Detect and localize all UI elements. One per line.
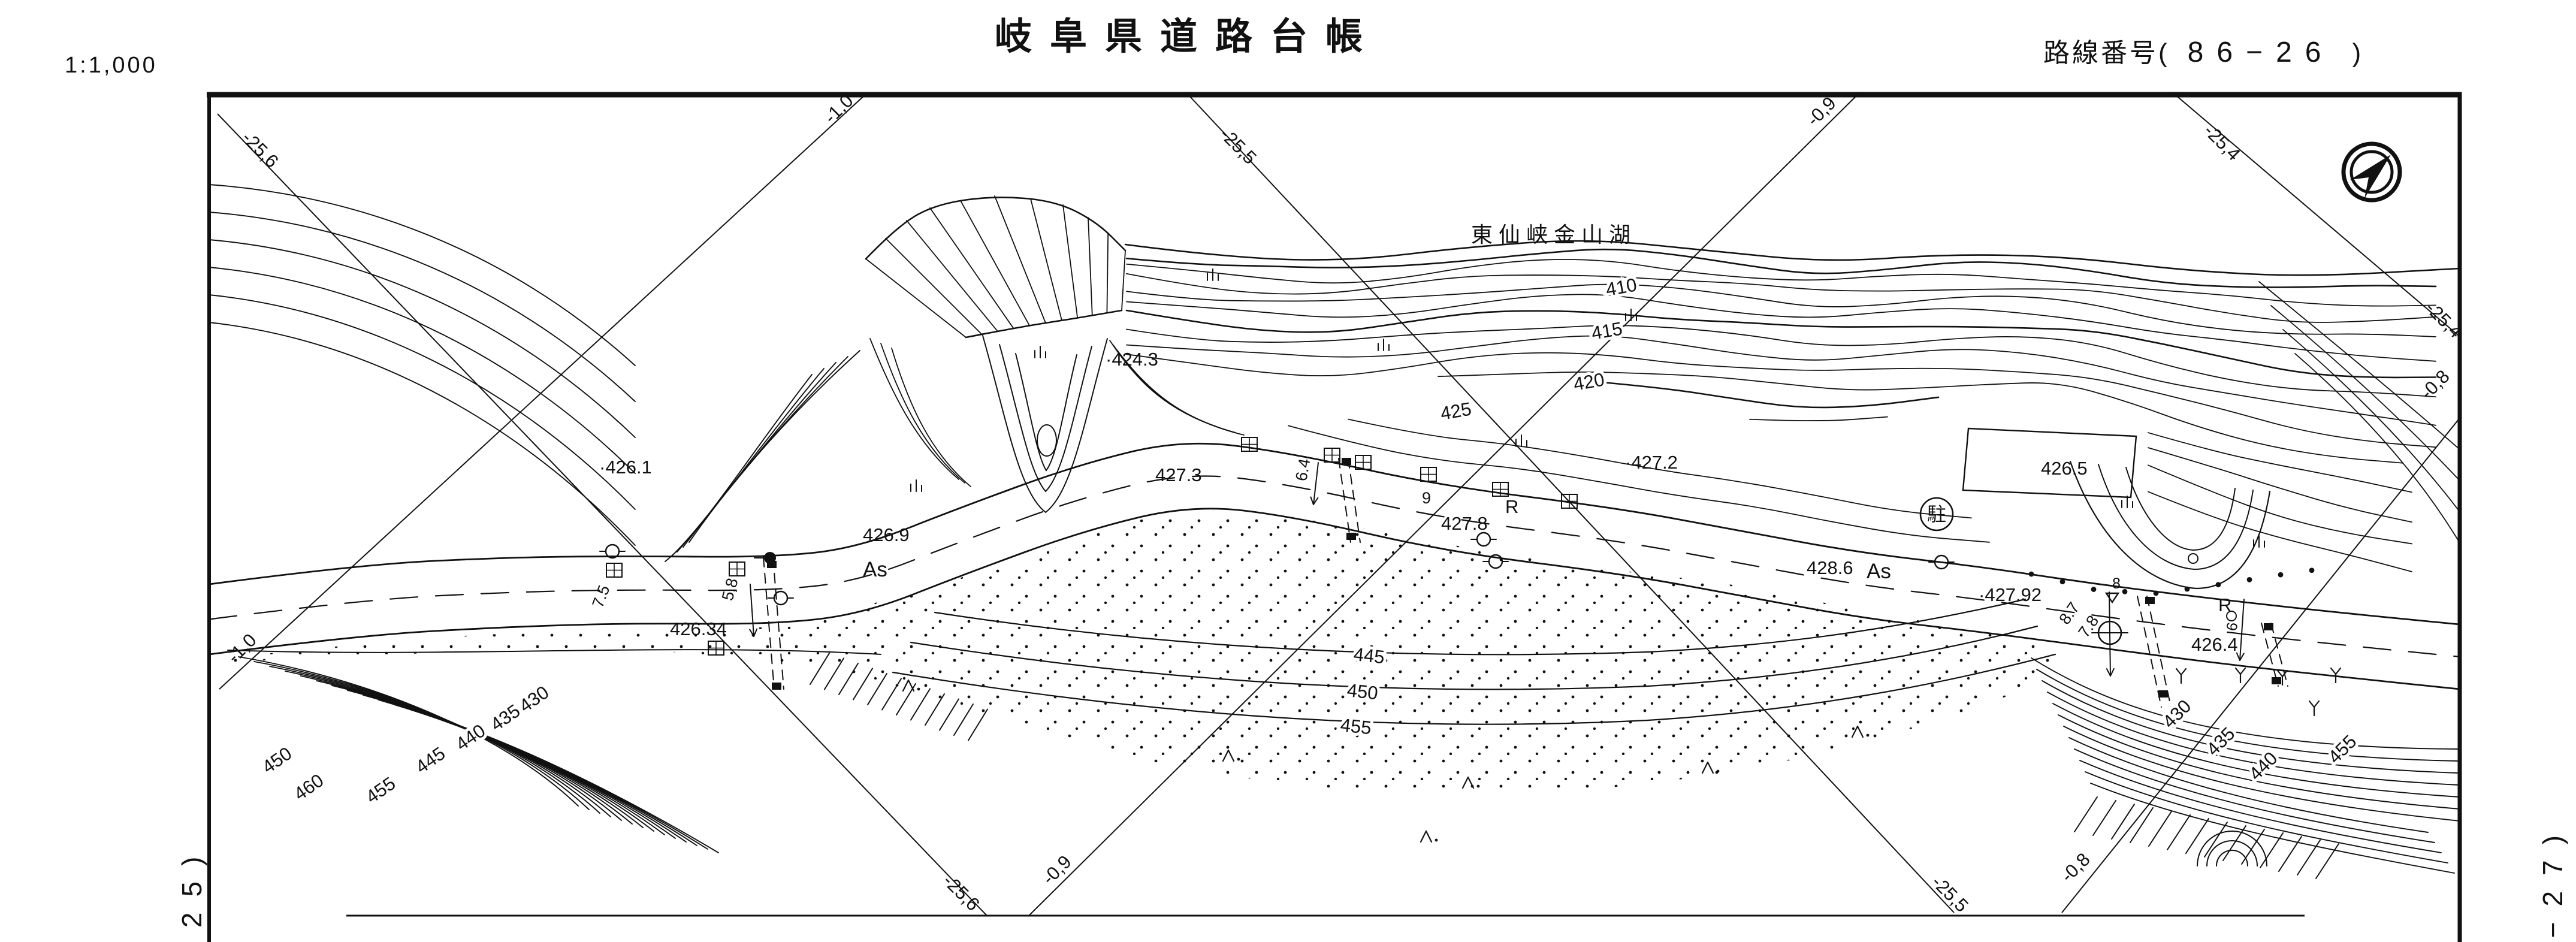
slope-hachure	[925, 694, 944, 725]
slope-hachure	[968, 709, 987, 741]
map-annotation-label: 455	[2324, 731, 2360, 768]
map-annotation-label: 450	[258, 742, 295, 777]
slope-hachure	[2093, 801, 2116, 835]
cliff-hachure	[907, 221, 998, 331]
contour-line	[1750, 417, 1888, 421]
culvert-crossing	[2261, 623, 2278, 686]
grid-coordinate-label: -25,6	[238, 127, 283, 172]
dimension-arrow	[2107, 592, 2114, 676]
culvert-end-icon	[1342, 458, 1351, 465]
contour-line	[1127, 274, 2436, 322]
map-annotation-label: 430	[515, 681, 552, 716]
contour-line	[209, 212, 635, 401]
contour-line	[2070, 461, 2270, 588]
slope-hachure	[2167, 815, 2190, 850]
map-annotation-label: ·426.1	[599, 457, 652, 478]
contour-line	[1127, 353, 2436, 447]
road-ledger-sheet: { "colors": {"ink": "#111111", "paper": …	[0, 0, 2576, 942]
map-border	[207, 92, 2462, 942]
contour-line	[689, 351, 860, 542]
culvert-end-icon	[2145, 597, 2155, 604]
utility-box-icon	[606, 563, 622, 577]
map-annotation-label: 445	[412, 742, 449, 777]
map-annotation-label: 426.34	[670, 618, 727, 639]
guardrail-dot	[2309, 567, 2315, 573]
grass-mark-icon	[1207, 269, 1218, 280]
map-annotation-label: 455	[1339, 714, 1372, 738]
culvert-crossing	[2137, 596, 2161, 707]
contour-line	[665, 375, 812, 561]
contour-line	[2085, 772, 2448, 863]
grid-coordinate-label: -0,9	[1802, 92, 1840, 130]
contour-line	[2126, 467, 2235, 550]
shrub-mark-icon	[2176, 669, 2186, 683]
contour-line	[1127, 294, 2436, 361]
contour-line	[209, 267, 635, 473]
marsh-mark-icon	[1421, 831, 1438, 842]
cliff-base	[966, 310, 1122, 337]
map-annotation-label: 5,8	[718, 576, 742, 603]
contour-line	[1288, 425, 1989, 542]
culvert-crossing	[2271, 623, 2288, 686]
map-annotation-label: R	[1505, 496, 1518, 517]
contour-line	[316, 681, 632, 824]
guardrail-dot	[2216, 582, 2221, 587]
benchmark-triangle-icon	[2106, 593, 2118, 602]
contour-line	[1127, 336, 2436, 425]
culvert-end-icon	[2272, 677, 2281, 684]
contour-line	[332, 686, 643, 828]
contour-line	[2148, 465, 2412, 544]
map-annotation-label: 426.9	[863, 524, 910, 545]
guardrail-dot	[2122, 589, 2128, 594]
culvert-end-icon	[2158, 690, 2168, 698]
grid-coordinate-label: -0,8	[2056, 849, 2094, 886]
map-annotation-label: 420	[1572, 369, 1606, 394]
cliff-hachure	[930, 208, 1013, 328]
contour-line	[1127, 285, 2436, 337]
guardrail-dot	[2060, 579, 2065, 584]
lake-name-label: 東仙峡金山湖	[1471, 223, 1636, 247]
map-annotation-label: 450	[1346, 680, 1379, 704]
map-annotation-label: 6	[2223, 621, 2241, 632]
map-annotation-label: As	[1867, 560, 1891, 583]
cliff-hachure	[1031, 199, 1062, 321]
map-annotation-label: 7.5	[588, 583, 613, 611]
parking-symbol-label: 駐	[1927, 503, 1946, 525]
cliff-hachure	[995, 196, 1046, 323]
contour-line	[285, 671, 611, 817]
slope-hachure	[2297, 840, 2320, 875]
guardrail-dot	[2185, 587, 2190, 592]
map-annotation-label: ·424.3	[1106, 349, 1158, 370]
guardrail-dot	[2278, 572, 2284, 578]
contour-line	[394, 705, 686, 842]
shrub-mark-icon	[2236, 668, 2245, 683]
contour-line	[1127, 310, 2436, 378]
contour-line	[238, 657, 578, 806]
grid-line	[219, 95, 865, 689]
map-annotation-label: 425	[1439, 398, 1473, 424]
contour-line	[2148, 492, 2412, 572]
guardrail-dot	[2154, 591, 2159, 596]
slope-hachure	[2279, 837, 2302, 871]
grid-coordinate-label: -25,4	[2200, 120, 2245, 165]
contour-line	[881, 343, 965, 483]
cliff-hachure	[1122, 250, 1125, 310]
map-annotation-label: 426.5	[2041, 458, 2088, 479]
slope-hachure	[940, 699, 959, 730]
map-annotation-label: R	[2218, 594, 2231, 615]
map-annotation-label: ·427.92	[1979, 584, 2042, 605]
map-annotation-label: 6.4	[1292, 457, 1313, 482]
grid-coordinate-label: -0,9	[1038, 851, 1076, 889]
culvert-end-icon	[2264, 623, 2273, 630]
contour-line	[2031, 658, 2460, 749]
contour-line	[1594, 382, 1938, 407]
map-annotation-label: 415	[1590, 318, 1624, 343]
slope-hachure	[2149, 811, 2172, 846]
grid-line	[2062, 419, 2459, 913]
slope-hachure	[911, 689, 930, 720]
contour-line	[2216, 850, 2248, 866]
grid-coordinate-label: -0,8	[2416, 366, 2454, 403]
riverbed-dotted-area	[216, 511, 2053, 794]
grid-coordinate-label: -25,5	[1928, 871, 1973, 916]
cliff-crest	[866, 197, 1125, 259]
slope-hachure	[2186, 819, 2209, 853]
contour-line	[209, 185, 635, 366]
gully-contour	[1037, 425, 1056, 456]
map-annotation-label: 460	[290, 769, 327, 804]
slope-hachure	[2112, 804, 2134, 839]
grass-mark-icon	[911, 480, 922, 491]
map-annotation-label: 427.3	[1155, 464, 1202, 485]
grass-mark-icon	[1035, 346, 1046, 358]
gully-contour	[983, 336, 1107, 512]
guardrail-dot	[2029, 572, 2034, 577]
cliff-hachure	[1088, 218, 1092, 315]
map-annotation-label: 427.8	[1441, 513, 1488, 534]
grid-coordinate-label: -25,6	[939, 870, 984, 915]
slope-hachure	[954, 704, 973, 735]
map-annotation-label: 428.6	[1807, 557, 1853, 578]
map-annotation-label: 410	[1604, 274, 1638, 300]
culvert-end-icon	[1346, 533, 1356, 540]
grid-coordinate-label: -25,5	[1216, 123, 1261, 168]
grass-mark-icon	[1378, 339, 1389, 351]
map-annotation-label: 8	[2112, 575, 2121, 592]
map-annotation-label: 426.4	[2191, 634, 2238, 655]
well-circle-icon	[768, 591, 793, 605]
map-annotation-label: 435	[487, 700, 524, 735]
map-annotation-label: 430	[2158, 696, 2195, 732]
contour-line	[892, 348, 971, 487]
lake-shoreline	[1125, 241, 2460, 275]
contour-line	[209, 240, 635, 437]
contour-line	[410, 709, 697, 846]
contour-line	[2098, 464, 2253, 569]
cliff-hachure	[866, 259, 966, 337]
gully-contour	[1016, 354, 1077, 470]
guardrail-dot	[2091, 587, 2097, 592]
north-arrow-icon	[2344, 144, 2400, 200]
contour-line	[1127, 249, 2436, 287]
map-annotation-label: As	[863, 558, 887, 581]
utility-box-icon	[1421, 467, 1436, 481]
map-canvas: 駐 -25,6-25,6-0,9-0,9-1,0-1,0-25,5-25,5-0…	[0, 0, 2576, 942]
utility-box-icon	[1324, 448, 1340, 462]
guardrail-dot	[2247, 577, 2252, 582]
map-annotation-label: 435	[2202, 723, 2239, 760]
slope-hachure	[2204, 822, 2227, 857]
cliff-hachure	[961, 201, 1029, 325]
culvert-end-icon	[772, 683, 781, 690]
contour-line	[1127, 259, 2436, 306]
utility-box-icon	[729, 562, 745, 576]
grass-mark-icon	[1516, 435, 1527, 446]
contour-line	[2148, 448, 2412, 522]
small-circle-icon	[2188, 554, 2198, 563]
map-annotation-label: ·427.2	[1625, 452, 1678, 473]
contour-line	[671, 369, 824, 557]
cliff-hachure	[1063, 205, 1077, 318]
slope-hachure	[2074, 797, 2097, 832]
shrub-mark-icon	[2309, 701, 2319, 715]
map-annotation-label: 9	[1422, 489, 1431, 507]
map-annotation-label: 445	[1352, 644, 1385, 668]
cliff-hachure	[1107, 233, 1108, 313]
contour-line	[2207, 841, 2257, 866]
map-annotation-label: 455	[362, 772, 399, 807]
well-circle-icon	[1471, 533, 1496, 546]
culvert-end-icon	[767, 561, 777, 568]
